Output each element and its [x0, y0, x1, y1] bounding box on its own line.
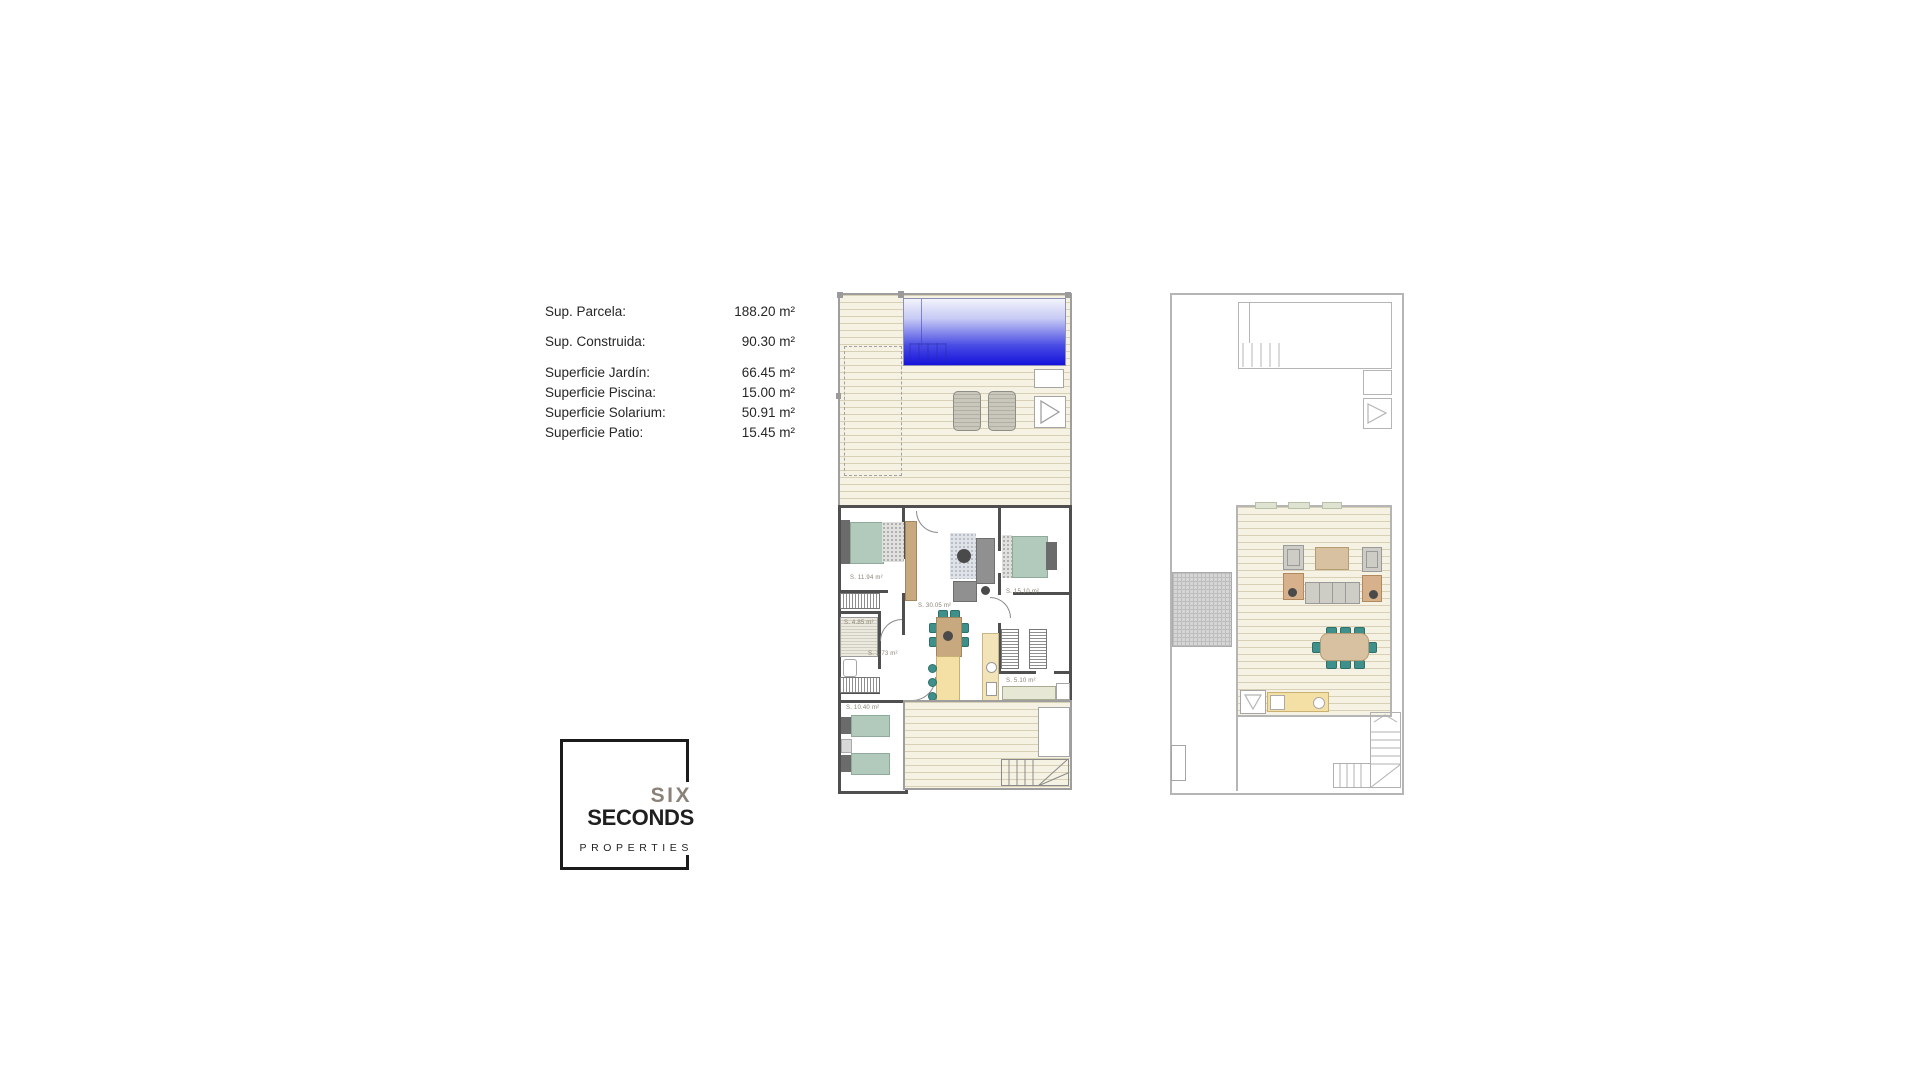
pool-steps-icon: [908, 343, 950, 363]
hall-wardrobe: [905, 521, 917, 601]
room-label: S. 10.40 m²: [846, 705, 879, 711]
pool-void-rail: [1249, 303, 1250, 343]
room-label: S. 5.10 m²: [1006, 678, 1036, 684]
cooktop-icon: [986, 682, 997, 696]
dining-chair: [1326, 660, 1337, 669]
triangle-icon: [1241, 691, 1265, 713]
triangle-icon: [1364, 399, 1391, 428]
logo-word-seconds: SECONDS: [587, 807, 694, 829]
armchair-cushion: [1366, 551, 1378, 568]
lounge-table: [1315, 547, 1349, 570]
lounge-armchair: [1362, 547, 1382, 572]
bed-headboard: [841, 717, 851, 734]
summary-value: 15.45 m²: [742, 425, 795, 441]
stairwell-icon: [1370, 712, 1401, 788]
bed-headboard: [1046, 542, 1057, 570]
deck-access-tab: [1255, 502, 1277, 509]
summary-row: Superficie Patio: 15.45 m²: [545, 425, 795, 441]
room-label: S. 1.73 m²: [868, 651, 898, 657]
sun-lounger: [953, 391, 981, 431]
wall: [1054, 671, 1069, 674]
double-bed: [1012, 536, 1048, 578]
bed-headboard: [841, 755, 851, 772]
wall: [998, 573, 1001, 595]
room-label: S. 11.94 m²: [850, 575, 883, 581]
dining-chair: [961, 623, 969, 633]
room-label: S. 30.05 m²: [918, 603, 951, 609]
room-label: S. 15.10 m²: [1006, 589, 1039, 595]
summary-row: Sup. Parcela: 188.20 m²: [545, 304, 795, 320]
logo-word-six: SIX: [651, 785, 692, 806]
sofa-divider: [1319, 583, 1320, 603]
table-decor: [943, 631, 953, 641]
outdoor-sofa: [1305, 582, 1360, 604]
summary-value: 188.20 m²: [734, 304, 795, 320]
sofa: [976, 538, 995, 584]
deck-triangle-box: [1240, 690, 1266, 714]
garden-dashed-zone: [844, 346, 902, 476]
bar-cabinet: [1270, 695, 1285, 710]
summary-value: 90.30 m²: [742, 334, 795, 350]
wardrobe: [1001, 629, 1019, 669]
room-label: S. 4.85 m²: [844, 620, 874, 626]
side-table: [981, 586, 990, 595]
summary-row: Sup. Construida: 90.30 m²: [545, 334, 795, 350]
page: Sup. Parcela: 188.20 m² Sup. Construida:…: [0, 0, 1920, 1080]
sofa-divider: [1345, 583, 1346, 603]
summary-label: Superficie Piscina:: [545, 385, 656, 401]
fence-post: [836, 393, 841, 399]
sun-lounger: [988, 391, 1016, 431]
deck-access-tab: [1288, 502, 1310, 509]
louver-grid: [1172, 572, 1232, 647]
dining-chair: [961, 637, 969, 647]
summary-row: Superficie Solarium: 50.91 m²: [545, 405, 795, 421]
toilet: [843, 659, 857, 677]
summary-value: 66.45 m²: [742, 365, 795, 381]
bed-blanket: [1002, 535, 1012, 578]
wall: [838, 611, 880, 614]
floor-plan-ground: S. 11.94 m² S. 4.85 m² S. 1.73 m² S. 30.…: [838, 293, 1072, 798]
deck-access-tab: [1322, 502, 1342, 509]
stairs-icon: [1333, 763, 1371, 788]
wall: [1236, 713, 1238, 791]
wall: [998, 671, 1036, 674]
dining-chair: [1340, 660, 1351, 669]
sofa-chaise: [953, 581, 977, 602]
bar-stool: [928, 678, 937, 687]
double-bed: [850, 522, 884, 564]
sofa-divider: [1332, 583, 1333, 603]
summary-value: 15.00 m²: [742, 385, 795, 401]
pool-void-steps-icon: [1241, 343, 1283, 367]
coffee-table: [957, 549, 971, 563]
floor-plan-solarium: [1170, 293, 1404, 795]
planter: [1288, 588, 1297, 597]
pool-ladder-rail: [921, 299, 922, 347]
summary-value: 50.91 m²: [742, 405, 795, 421]
fence-post: [898, 291, 904, 298]
stairs-icon: [1001, 759, 1069, 786]
swimming-pool: [903, 298, 1066, 366]
summary-label: Sup. Parcela:: [545, 304, 626, 320]
pool-void-outline: [1238, 302, 1392, 369]
single-bed: [851, 715, 890, 737]
single-bed: [851, 753, 890, 775]
bed-headboard: [841, 520, 850, 564]
stair-landing: [1038, 707, 1070, 757]
planter: [1369, 590, 1378, 599]
fence-post: [837, 292, 843, 298]
summary-label: Superficie Patio:: [545, 425, 643, 441]
summary-label: Sup. Construida:: [545, 334, 646, 350]
outdoor-bar-counter: [1267, 692, 1329, 712]
dining-chair: [1354, 660, 1365, 669]
wardrobe: [1029, 629, 1047, 669]
triangle-icon: [1035, 397, 1065, 427]
nightstand: [841, 739, 852, 753]
sink-icon: [986, 662, 997, 673]
lounge-armchair: [1283, 545, 1304, 570]
shower-tray: [1056, 683, 1070, 700]
dining-chair: [1368, 642, 1377, 653]
wall: [998, 507, 1001, 551]
solarium-deck: [1236, 505, 1392, 717]
wardrobe: [840, 593, 880, 609]
sink-icon: [1313, 697, 1325, 709]
garden-triangle-box: [1034, 396, 1066, 428]
bathroom-counter: [1002, 686, 1056, 700]
kitchen-island: [936, 656, 960, 702]
summary-row: Superficie Jardín: 66.45 m²: [545, 365, 795, 381]
garden-equipment-box: [1034, 369, 1064, 388]
wardrobe: [840, 677, 880, 693]
logo-text: SIX SECONDS PROPERTIES: [548, 739, 694, 869]
kitchen-counter: [982, 633, 999, 701]
armchair-cushion: [1287, 549, 1300, 566]
roof-triangle-box: [1363, 398, 1392, 429]
outdoor-dining-table: [1320, 633, 1369, 661]
summary-label: Superficie Solarium:: [545, 405, 666, 421]
logo-word-properties: PROPERTIES: [580, 843, 694, 854]
roof-equipment-box: [1363, 370, 1392, 395]
bar-stool: [928, 664, 937, 673]
bed-blanket: [882, 522, 904, 562]
wall-niche: [1171, 745, 1186, 781]
summary-label: Superficie Jardín:: [545, 365, 650, 381]
summary-row: Superficie Piscina: 15.00 m²: [545, 385, 795, 401]
